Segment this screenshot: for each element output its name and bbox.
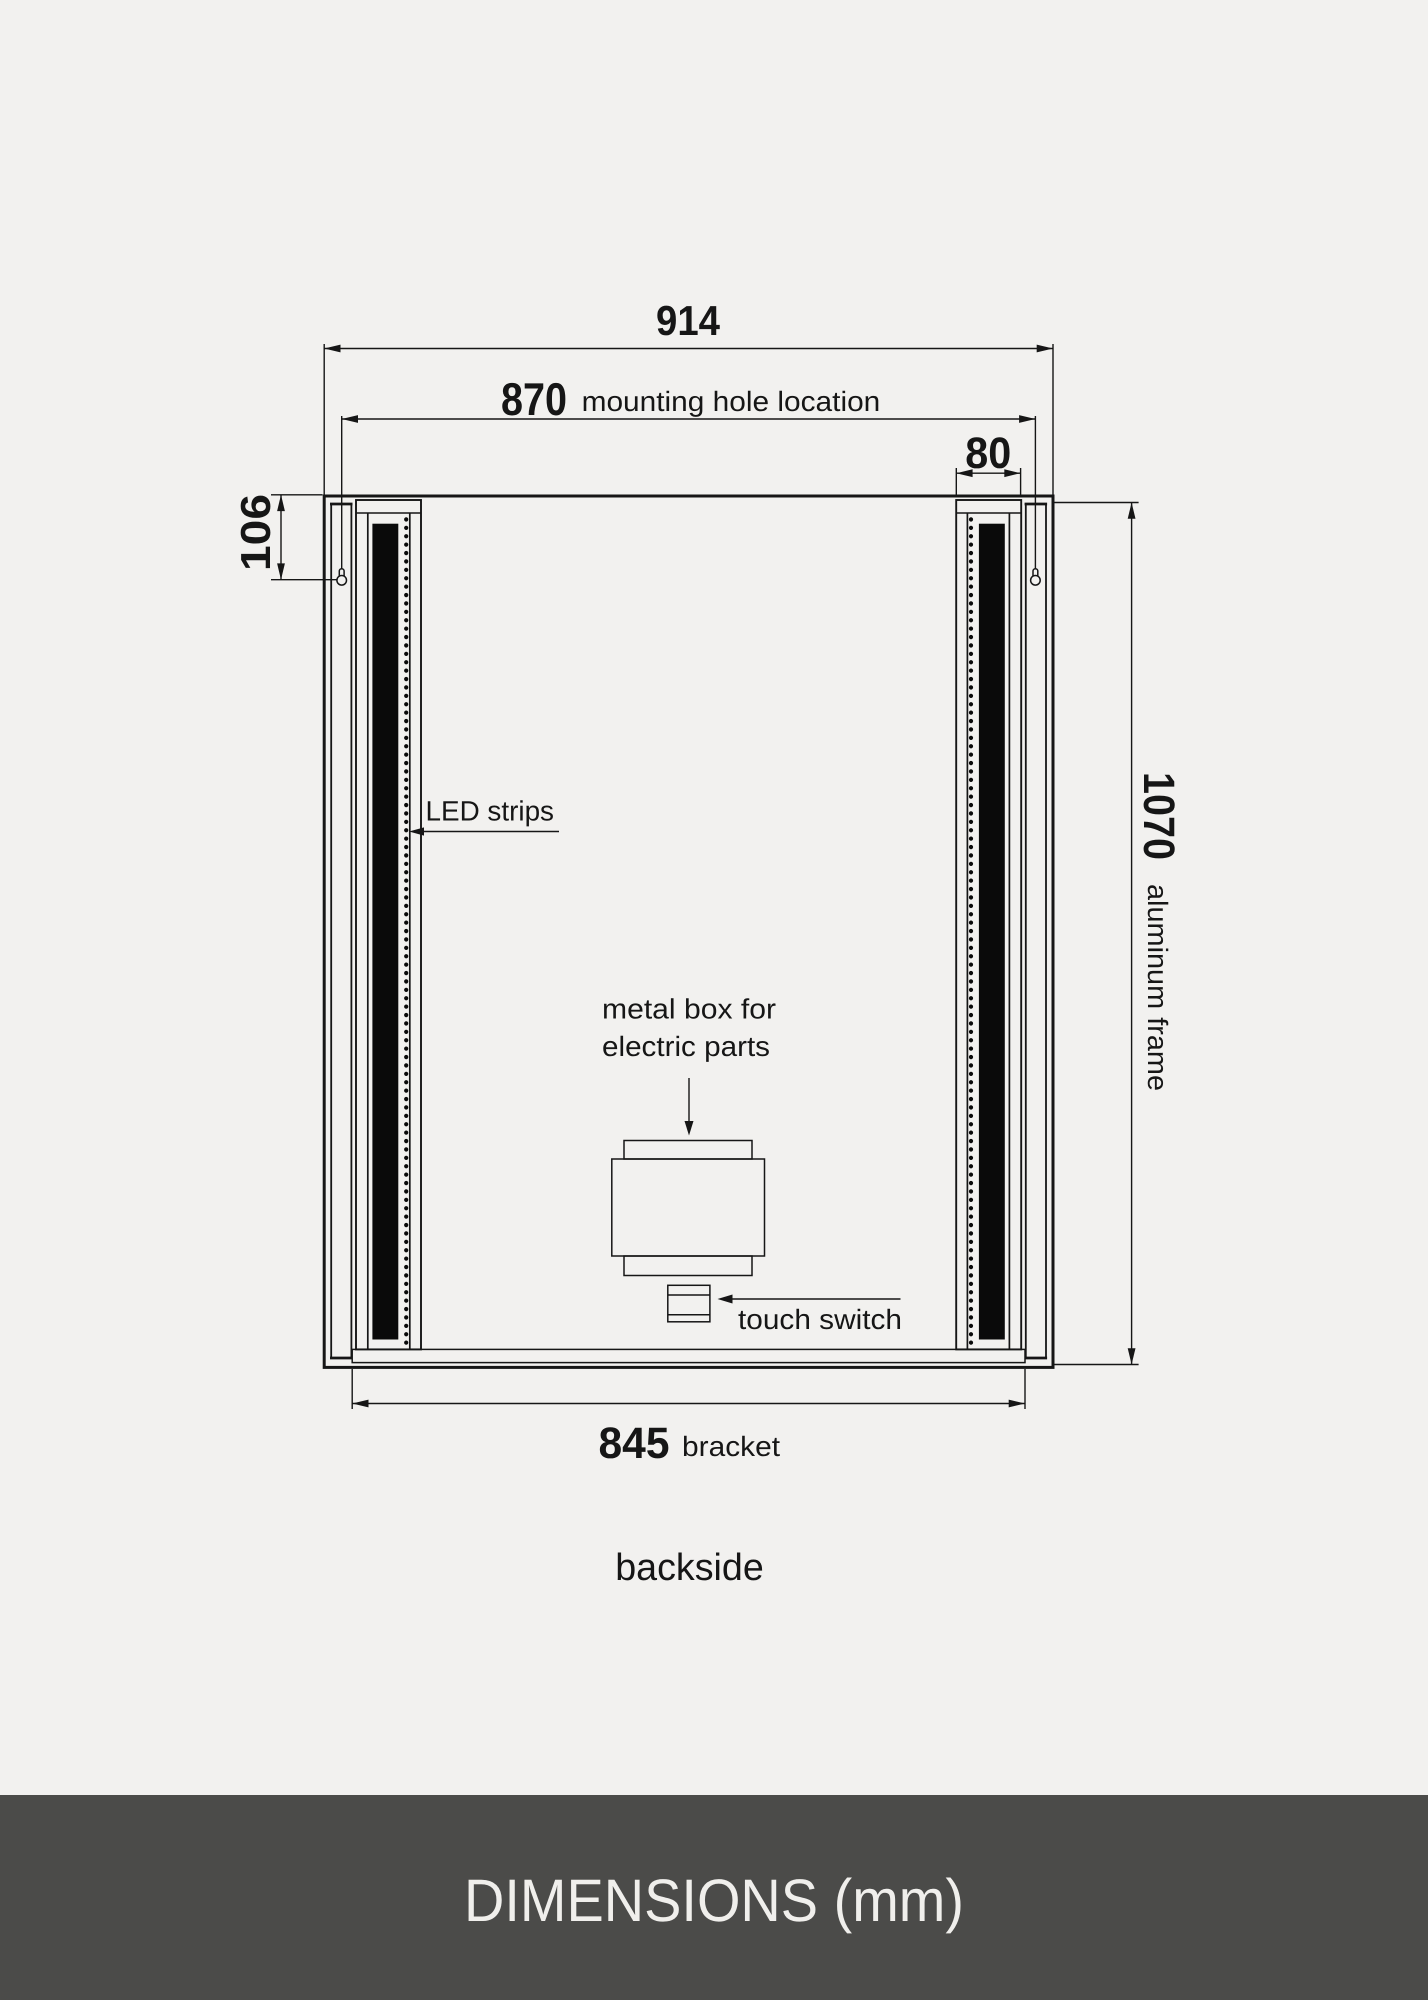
svg-text:1070: 1070 — [1134, 772, 1183, 860]
svg-text:touch switch: touch switch — [738, 1304, 902, 1335]
svg-text:electric parts: electric parts — [602, 1031, 770, 1062]
svg-text:DIMENSIONS (mm): DIMENSIONS (mm) — [464, 1867, 964, 1934]
svg-text:80: 80 — [965, 429, 1011, 478]
svg-text:914: 914 — [656, 297, 721, 344]
svg-text:aluminum frame: aluminum frame — [1142, 884, 1173, 1091]
svg-text:870: 870 — [501, 373, 567, 425]
svg-text:backside: backside — [615, 1547, 764, 1589]
svg-text:845: 845 — [599, 1419, 670, 1468]
svg-text:106: 106 — [232, 494, 279, 571]
svg-text:mounting hole location: mounting hole location — [582, 386, 881, 417]
svg-text:LED strips: LED strips — [426, 796, 555, 827]
svg-text:bracket: bracket — [682, 1431, 780, 1462]
svg-text:metal box for: metal box for — [602, 994, 776, 1025]
